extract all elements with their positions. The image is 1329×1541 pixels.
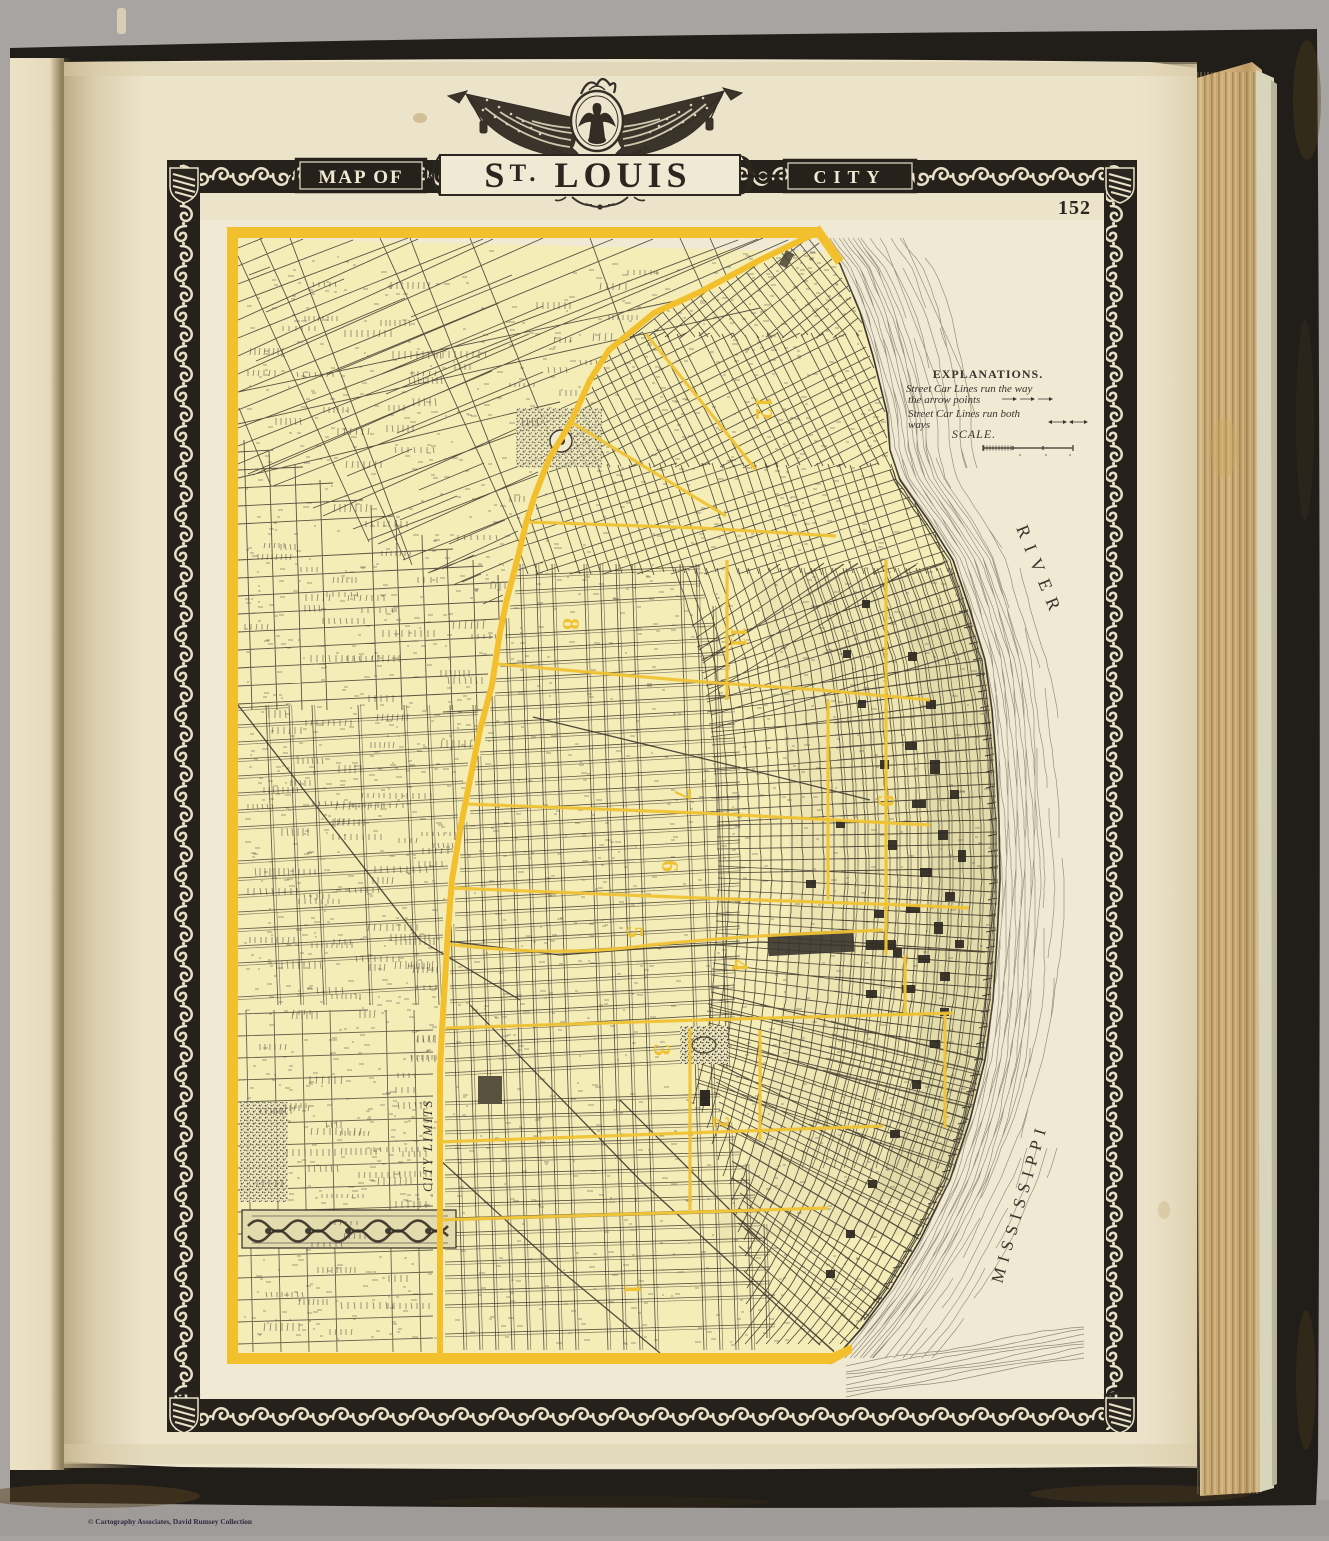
svg-text:SCALE.: SCALE. [952, 427, 996, 441]
svg-text:4: 4 [726, 959, 752, 971]
svg-text:1: 1 [619, 1283, 645, 1295]
svg-text:CITY: CITY [813, 167, 886, 187]
svg-text:CITY LIMITS: CITY LIMITS [420, 1099, 435, 1192]
svg-text:9: 9 [872, 795, 898, 807]
svg-text:12: 12 [750, 396, 776, 420]
svg-text:ways: ways [908, 419, 930, 431]
svg-text:EXPLANATIONS.: EXPLANATIONS. [933, 367, 1043, 381]
svg-text:the arrow points: the arrow points [908, 394, 980, 406]
svg-text:11: 11 [725, 626, 751, 649]
svg-text:3: 3 [648, 1044, 674, 1056]
svg-text:© Cartography Associates, Davi: © Cartography Associates, David Rumsey C… [88, 1517, 252, 1526]
svg-text:7: 7 [669, 788, 695, 800]
svg-text:5: 5 [621, 926, 647, 938]
svg-text:2: 2 [707, 1116, 733, 1128]
svg-text:6: 6 [656, 860, 682, 872]
svg-text:152: 152 [1058, 197, 1091, 219]
svg-text:MAP OF: MAP OF [318, 167, 403, 188]
svg-text:8: 8 [557, 618, 583, 630]
